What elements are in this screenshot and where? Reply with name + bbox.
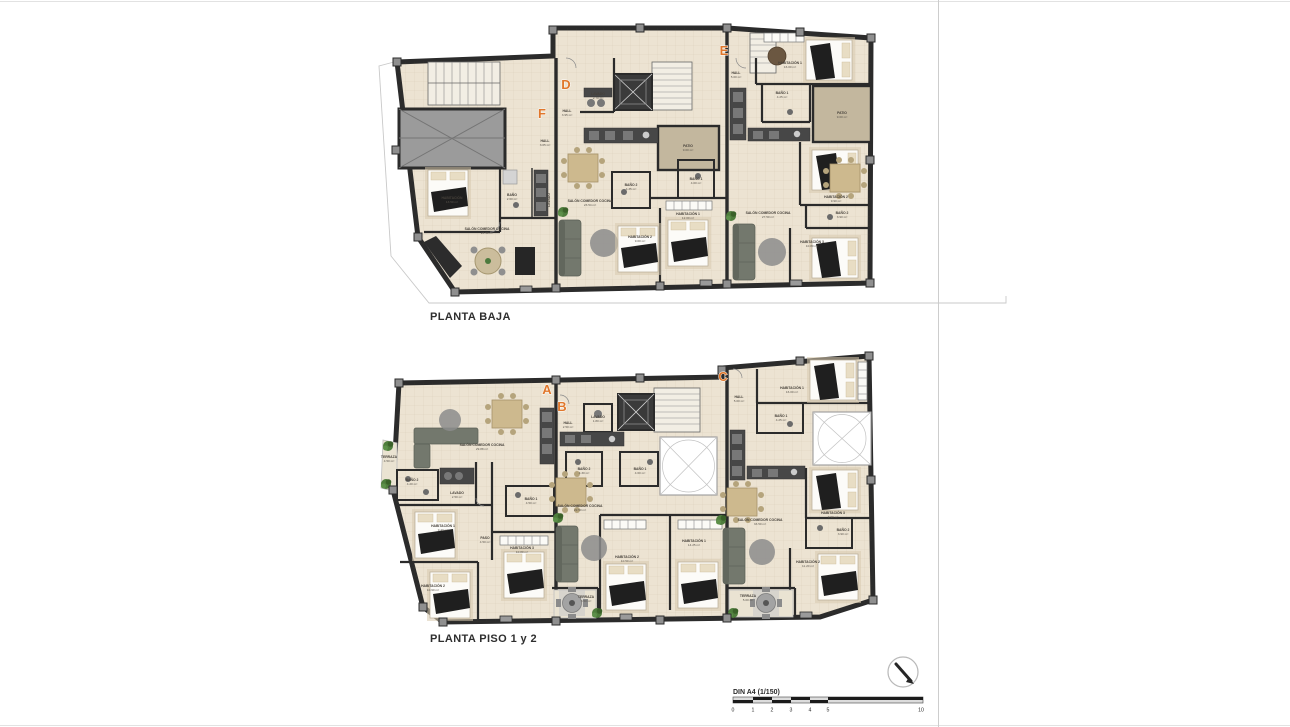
lightwell	[660, 437, 717, 495]
svg-text:4.25 m²: 4.25 m²	[777, 95, 788, 99]
sheet-bottom-border	[0, 725, 1290, 726]
scale-bar: DIN A4 (1/150) 0 1 2 3 4 5 10	[732, 689, 924, 714]
svg-text:9.00 m²: 9.00 m²	[683, 148, 694, 152]
closet	[858, 362, 867, 400]
svg-text:27.50 m²: 27.50 m²	[762, 215, 774, 219]
svg-text:2.60 m²: 2.60 m²	[507, 197, 518, 201]
svg-text:4.50 m²: 4.50 m²	[384, 459, 395, 463]
svg-text:5.00 m²: 5.00 m²	[743, 598, 754, 602]
scale-tick: 1	[752, 708, 755, 714]
svg-text:10.50 m²: 10.50 m²	[621, 559, 633, 563]
deck	[399, 109, 505, 168]
svg-text:2.50 m²: 2.50 m²	[563, 425, 574, 429]
svg-text:4.20 m²: 4.20 m²	[407, 482, 418, 486]
svg-text:10.80 m²: 10.80 m²	[806, 244, 818, 248]
plan-sheet: F D E HALL3.05 m² HABITACIÓN13.50 m² BAÑ…	[0, 0, 1290, 727]
svg-text:16.00 m²: 16.00 m²	[786, 390, 798, 394]
svg-text:11.20 m²: 11.20 m²	[802, 564, 814, 568]
legend: DIN A4 (1/150) 0 1 2 3 4 5 10	[720, 648, 960, 723]
stairs-icon	[654, 388, 700, 432]
svg-text:4.60 m²: 4.60 m²	[635, 471, 646, 475]
scale-tick: 4	[809, 708, 812, 714]
scale-tick: 5	[827, 708, 830, 714]
svg-text:5.00 m²: 5.00 m²	[731, 75, 742, 79]
svg-text:LAVADO: LAVADO	[547, 193, 551, 207]
svg-text:16.00 m²: 16.00 m²	[784, 65, 796, 69]
plan-planta-piso: A B C TERRAZA4.50 m² SALÓN COMEDOR COCIN…	[370, 345, 1030, 635]
svg-text:14.25 m²: 14.25 m²	[688, 543, 700, 547]
scale-tick: 10	[918, 708, 924, 714]
svg-text:3.90 m²: 3.90 m²	[837, 215, 848, 219]
unit-letter-a: A	[542, 382, 552, 397]
unit-letter-e: E	[720, 43, 729, 58]
unit-letter-c: C	[718, 369, 728, 384]
svg-text:2.50 m²: 2.50 m²	[452, 495, 463, 499]
closet	[604, 520, 646, 529]
svg-text:22.50 m²: 22.50 m²	[574, 508, 586, 512]
stairs-icon	[428, 62, 500, 105]
tv-cabinet	[515, 247, 535, 275]
scale-tick: 3	[790, 708, 793, 714]
svg-text:3.95 m²: 3.95 m²	[562, 113, 573, 117]
svg-text:10.80 m²: 10.80 m²	[516, 550, 528, 554]
svg-text:5.00 m²: 5.00 m²	[734, 399, 745, 403]
svg-text:13.50 m²: 13.50 m²	[446, 200, 458, 204]
scale-tick: 0	[732, 708, 735, 714]
svg-text:4.50 m²: 4.50 m²	[480, 540, 491, 544]
svg-text:3.50 m²: 3.50 m²	[581, 599, 592, 603]
svg-text:9.40 m²: 9.40 m²	[438, 528, 449, 532]
svg-text:4.25 m²: 4.25 m²	[776, 418, 787, 422]
svg-text:33.50 m²: 33.50 m²	[754, 522, 766, 526]
unit-letter-b: B	[557, 399, 566, 414]
sheet-top-border	[0, 1, 1290, 2]
svg-text:9.00 m²: 9.00 m²	[635, 239, 646, 243]
svg-text:4.35 m²: 4.35 m²	[626, 187, 637, 191]
svg-text:9.90 m²: 9.90 m²	[828, 515, 839, 519]
svg-text:12.00 m²: 12.00 m²	[682, 216, 694, 220]
svg-text:10.90 m²: 10.90 m²	[427, 588, 439, 592]
scale-label: DIN A4 (1/150)	[733, 689, 780, 696]
unit-letter-f: F	[538, 106, 546, 121]
elevator-icon	[614, 74, 652, 110]
closet	[666, 201, 712, 210]
svg-text:4.30 m²: 4.30 m²	[579, 471, 590, 475]
svg-text:9.00 m²: 9.00 m²	[837, 115, 848, 119]
plan-planta-baja: F D E HALL3.05 m² HABITACIÓN13.50 m² BAÑ…	[370, 18, 1030, 310]
svg-text:3.05 m²: 3.05 m²	[540, 143, 551, 147]
svg-text:29.88 m²: 29.88 m²	[476, 447, 488, 451]
plan-title-planta-piso: PLANTA PISO 1 y 2	[430, 633, 537, 645]
lightwell	[813, 412, 871, 465]
stairs-icon	[652, 62, 692, 110]
sofa	[414, 444, 430, 468]
closet	[678, 520, 722, 529]
svg-text:24.50 m²: 24.50 m²	[481, 231, 493, 235]
elevator-icon	[618, 394, 654, 430]
svg-text:4.00 m²: 4.00 m²	[691, 181, 702, 185]
svg-text:4.50 m²: 4.50 m²	[526, 501, 537, 505]
svg-text:2.70 m²: 2.70 m²	[593, 96, 604, 100]
svg-text:9.90 m²: 9.90 m²	[831, 199, 842, 203]
unit-letter-d: D	[561, 77, 570, 92]
closet	[500, 536, 548, 545]
svg-text:23.54 m²: 23.54 m²	[584, 203, 596, 207]
north-arrow-icon	[888, 657, 918, 687]
plan-title-planta-baja: PLANTA BAJA	[430, 311, 511, 323]
svg-text:3.90 m²: 3.90 m²	[838, 532, 849, 536]
sofa	[414, 428, 478, 444]
svg-text:1.80 m²: 1.80 m²	[593, 419, 604, 423]
scale-tick: 2	[771, 708, 774, 714]
